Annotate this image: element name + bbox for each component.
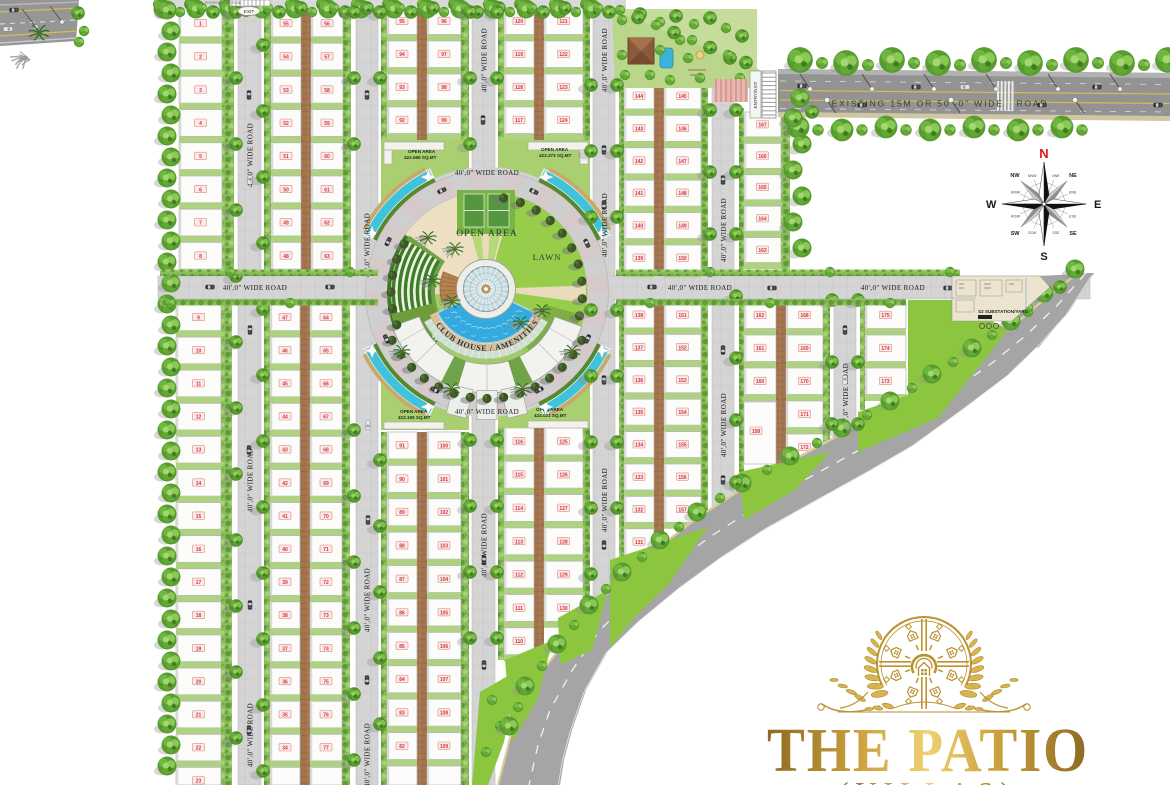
svg-text:152: 152 (678, 345, 687, 351)
svg-text:97: 97 (441, 52, 447, 58)
svg-text:158: 158 (752, 429, 761, 435)
svg-text:128: 128 (559, 539, 568, 545)
svg-text:OPEN AREA: OPEN AREA (408, 149, 436, 154)
svg-text:OPEN AREA: OPEN AREA (541, 147, 569, 152)
svg-text:SSW: SSW (1028, 231, 1037, 235)
svg-text:129: 129 (559, 573, 568, 579)
svg-text:117: 117 (515, 118, 523, 124)
svg-text:ENTRY/EXIT: ENTRY/EXIT (753, 81, 758, 108)
svg-text:147: 147 (678, 159, 687, 165)
svg-text:67: 67 (323, 415, 329, 421)
svg-text:20: 20 (196, 679, 202, 685)
svg-text:89: 89 (399, 510, 405, 516)
svg-text:73: 73 (323, 613, 329, 619)
svg-text:15: 15 (196, 514, 202, 520)
svg-text:NNW: NNW (1028, 174, 1037, 178)
svg-text:40',0" WIDE ROAD: 40',0" WIDE ROAD (247, 448, 255, 512)
svg-text:423.373 SQ.MT: 423.373 SQ.MT (539, 153, 572, 158)
svg-text:53: 53 (283, 88, 289, 94)
svg-text:118: 118 (515, 85, 523, 91)
svg-text:138: 138 (635, 313, 644, 319)
svg-text:162: 162 (756, 313, 765, 319)
svg-text:106: 106 (440, 644, 449, 650)
svg-text:123: 123 (559, 85, 568, 91)
svg-text:ENE: ENE (1069, 191, 1077, 195)
svg-text:41: 41 (282, 514, 288, 520)
svg-text:148: 148 (678, 191, 687, 197)
svg-text:140: 140 (635, 224, 644, 230)
svg-text:54: 54 (283, 55, 289, 61)
svg-text:119: 119 (515, 52, 523, 58)
svg-text:47: 47 (282, 315, 288, 321)
svg-text:93: 93 (399, 85, 405, 91)
svg-text:134: 134 (635, 443, 644, 449)
svg-text:172: 172 (800, 445, 809, 451)
svg-text:86: 86 (399, 611, 405, 617)
svg-text:90: 90 (399, 477, 405, 483)
svg-text:EXIT: EXIT (244, 9, 255, 15)
svg-text:121: 121 (559, 19, 568, 25)
svg-text:135: 135 (635, 410, 644, 416)
svg-text:131: 131 (635, 540, 644, 546)
svg-text:3: 3 (199, 88, 202, 94)
svg-text:72: 72 (323, 580, 329, 586)
svg-text:40',0" WIDE ROAD: 40',0" WIDE ROAD (455, 169, 519, 177)
svg-text:171: 171 (800, 412, 809, 418)
svg-text:42: 42 (282, 481, 288, 487)
svg-text:83: 83 (399, 711, 405, 717)
svg-text:126: 126 (559, 473, 568, 479)
svg-text:40',0" WIDE ROAD: 40',0" WIDE ROAD (861, 284, 925, 292)
svg-text:74: 74 (323, 646, 329, 652)
svg-text:108: 108 (440, 711, 449, 717)
svg-text:11: 11 (196, 382, 202, 388)
svg-text:34: 34 (282, 746, 288, 752)
svg-text:85: 85 (399, 644, 405, 650)
svg-text:40',0" WIDE ROAD: 40',0" WIDE ROAD (720, 198, 728, 262)
svg-text:149: 149 (678, 224, 687, 230)
svg-text:144: 144 (635, 94, 644, 100)
svg-text:19: 19 (196, 646, 202, 652)
svg-text:44: 44 (282, 415, 288, 421)
svg-text:NE: NE (1069, 173, 1077, 179)
svg-text:103: 103 (440, 544, 449, 550)
svg-text:17: 17 (196, 580, 202, 586)
svg-text:64: 64 (323, 315, 329, 321)
svg-text:155: 155 (678, 443, 687, 449)
svg-text:40',0" WIDE ROAD: 40',0" WIDE ROAD (364, 568, 372, 632)
svg-text:142: 142 (635, 159, 644, 165)
svg-text:77: 77 (323, 746, 329, 752)
svg-text:12: 12 (196, 415, 202, 421)
svg-text:9: 9 (197, 315, 200, 321)
svg-text:14: 14 (196, 481, 202, 487)
svg-text:S2 SUBSTATION/YARD: S2 SUBSTATION/YARD (978, 309, 1029, 314)
svg-text:122: 122 (559, 52, 568, 58)
svg-text:70: 70 (323, 514, 329, 520)
svg-text:98: 98 (441, 85, 447, 91)
svg-text:109: 109 (440, 744, 449, 750)
svg-text:125: 125 (559, 439, 568, 445)
svg-text:112: 112 (515, 573, 523, 579)
svg-text:151: 151 (678, 313, 687, 319)
svg-text:40',0" WIDE ROAD: 40',0" WIDE ROAD (455, 408, 519, 416)
svg-text:75: 75 (323, 679, 329, 685)
svg-text:40',0" WIDE ROAD: 40',0" WIDE ROAD (364, 723, 372, 785)
svg-text:NW: NW (1010, 173, 1020, 179)
svg-text:40',0" WIDE ROAD: 40',0" WIDE ROAD (842, 363, 850, 427)
svg-text:4: 4 (199, 121, 202, 127)
svg-text:40',0" WIDE ROAD: 40',0" WIDE ROAD (601, 28, 609, 92)
svg-text:40',0" WIDE ROAD: 40',0" WIDE ROAD (364, 213, 372, 277)
svg-text:6: 6 (199, 187, 202, 193)
svg-text:OPEN AREA: OPEN AREA (400, 409, 428, 414)
svg-text:166: 166 (758, 154, 767, 160)
svg-text:145: 145 (678, 94, 687, 100)
svg-text:143: 143 (635, 126, 644, 132)
svg-text:58: 58 (324, 88, 330, 94)
svg-text:150: 150 (678, 256, 687, 262)
svg-text:36: 36 (282, 679, 288, 685)
svg-text:66: 66 (323, 382, 329, 388)
svg-text:104: 104 (440, 577, 449, 583)
svg-text:102: 102 (440, 510, 449, 516)
svg-text:13: 13 (196, 448, 202, 454)
svg-text:68: 68 (323, 448, 329, 454)
svg-text:60: 60 (324, 154, 330, 160)
svg-text:167: 167 (758, 123, 767, 129)
svg-text:22: 22 (196, 746, 202, 752)
svg-text:W: W (986, 199, 997, 211)
svg-text:(VILLAS): (VILLAS) (839, 775, 1017, 785)
svg-text:51: 51 (283, 154, 289, 160)
svg-text:160: 160 (756, 379, 765, 385)
svg-text:5: 5 (199, 154, 202, 160)
svg-text:124: 124 (559, 118, 568, 124)
svg-text:423.155 SQ.MT: 423.155 SQ.MT (398, 415, 431, 420)
svg-text:95: 95 (399, 19, 405, 25)
svg-text:55: 55 (283, 21, 289, 27)
svg-text:SE: SE (1069, 231, 1077, 237)
svg-text:114: 114 (515, 506, 523, 512)
svg-text:40',0" WIDE ROAD: 40',0" WIDE ROAD (601, 468, 609, 532)
svg-text:111: 111 (515, 606, 523, 612)
svg-text:39: 39 (282, 580, 288, 586)
svg-text:92: 92 (399, 118, 405, 124)
svg-text:157: 157 (678, 507, 687, 513)
svg-text:PROPOSED 40' ROAD: PROPOSED 40' ROAD (205, 1, 242, 5)
svg-text:165: 165 (758, 185, 767, 191)
svg-text:7: 7 (199, 221, 202, 227)
svg-text:120: 120 (515, 19, 524, 25)
svg-text:115: 115 (515, 473, 523, 479)
svg-text:40',0" WIDE ROAD: 40',0" WIDE ROAD (223, 284, 287, 292)
svg-text:E: E (1094, 199, 1101, 211)
svg-text:146: 146 (678, 126, 687, 132)
svg-text:110: 110 (515, 639, 523, 645)
svg-text:LAWN: LAWN (533, 252, 562, 262)
svg-text:63: 63 (324, 254, 330, 260)
svg-text:422.668 SQ.MT: 422.668 SQ.MT (404, 155, 437, 160)
svg-text:16: 16 (196, 547, 202, 553)
svg-text:61: 61 (324, 187, 330, 193)
svg-text:56: 56 (324, 21, 330, 27)
svg-text:107: 107 (440, 677, 449, 683)
svg-text:50: 50 (283, 187, 289, 193)
svg-text:45: 45 (282, 382, 288, 388)
svg-text:57: 57 (324, 55, 330, 61)
svg-text:82: 82 (399, 744, 405, 750)
svg-text:40',0" WIDE ROAD: 40',0" WIDE ROAD (481, 513, 489, 577)
svg-text:52: 52 (283, 121, 289, 127)
svg-text:37: 37 (282, 646, 288, 652)
svg-text:59: 59 (324, 121, 330, 127)
svg-text:101: 101 (440, 477, 449, 483)
svg-text:139: 139 (635, 256, 644, 262)
svg-text:127: 127 (559, 506, 568, 512)
svg-text:65: 65 (323, 348, 329, 354)
svg-text:136: 136 (635, 378, 644, 384)
svg-text:137: 137 (635, 345, 644, 351)
svg-text:48: 48 (283, 254, 289, 260)
svg-text:8: 8 (199, 254, 202, 260)
svg-text:SW: SW (1011, 231, 1021, 237)
svg-text:105: 105 (440, 611, 449, 617)
svg-text:116: 116 (515, 439, 523, 445)
svg-text:130: 130 (559, 606, 568, 612)
svg-text:173: 173 (881, 379, 890, 385)
svg-text:35: 35 (282, 713, 288, 719)
svg-text:154: 154 (678, 410, 687, 416)
svg-text:46: 46 (282, 348, 288, 354)
svg-text:ESE: ESE (1069, 214, 1077, 218)
svg-text:SSE: SSE (1052, 231, 1060, 235)
svg-text:1: 1 (199, 21, 202, 27)
svg-text:NNE: NNE (1052, 174, 1060, 178)
svg-text:76: 76 (323, 713, 329, 719)
svg-text:96: 96 (441, 19, 447, 25)
svg-text:23: 23 (196, 779, 202, 785)
svg-text:88: 88 (399, 544, 405, 550)
svg-text:38: 38 (282, 613, 288, 619)
svg-text:170: 170 (800, 379, 809, 385)
svg-text:WNW: WNW (1011, 191, 1021, 195)
svg-text:161: 161 (756, 346, 765, 352)
svg-text:2: 2 (199, 55, 202, 61)
svg-text:99: 99 (441, 118, 447, 124)
svg-text:175: 175 (881, 313, 890, 319)
svg-text:100: 100 (440, 443, 449, 449)
svg-text:164: 164 (758, 217, 767, 223)
svg-text:18: 18 (196, 613, 202, 619)
svg-text:40: 40 (282, 547, 288, 553)
svg-text:141: 141 (635, 191, 644, 197)
svg-text:21: 21 (196, 713, 202, 719)
svg-text:71: 71 (323, 547, 329, 553)
svg-text:163: 163 (758, 248, 767, 254)
svg-text:94: 94 (399, 52, 405, 58)
svg-text:10: 10 (196, 348, 202, 354)
svg-text:424.021 SQ.MT: 424.021 SQ.MT (534, 413, 567, 418)
svg-text:113: 113 (515, 539, 523, 545)
svg-text:OPEN AREA: OPEN AREA (456, 229, 518, 239)
svg-text:84: 84 (399, 677, 405, 683)
svg-text:156: 156 (678, 475, 687, 481)
svg-text:169: 169 (800, 346, 809, 352)
svg-text:S: S (1040, 251, 1047, 263)
svg-text:174: 174 (881, 346, 890, 352)
svg-text:133: 133 (635, 475, 644, 481)
svg-text:N: N (1039, 146, 1048, 161)
svg-text:168: 168 (800, 313, 809, 319)
svg-text:132: 132 (635, 507, 644, 513)
svg-text:WSW: WSW (1011, 214, 1021, 218)
svg-text:153: 153 (678, 378, 687, 384)
svg-text:40',0" WIDE ROAD: 40',0" WIDE ROAD (668, 284, 732, 292)
svg-text:43: 43 (282, 448, 288, 454)
svg-text:87: 87 (399, 577, 405, 583)
svg-text:91: 91 (399, 443, 405, 449)
svg-text:69: 69 (323, 481, 329, 487)
svg-text:49: 49 (283, 221, 289, 227)
svg-text:62: 62 (324, 221, 330, 227)
